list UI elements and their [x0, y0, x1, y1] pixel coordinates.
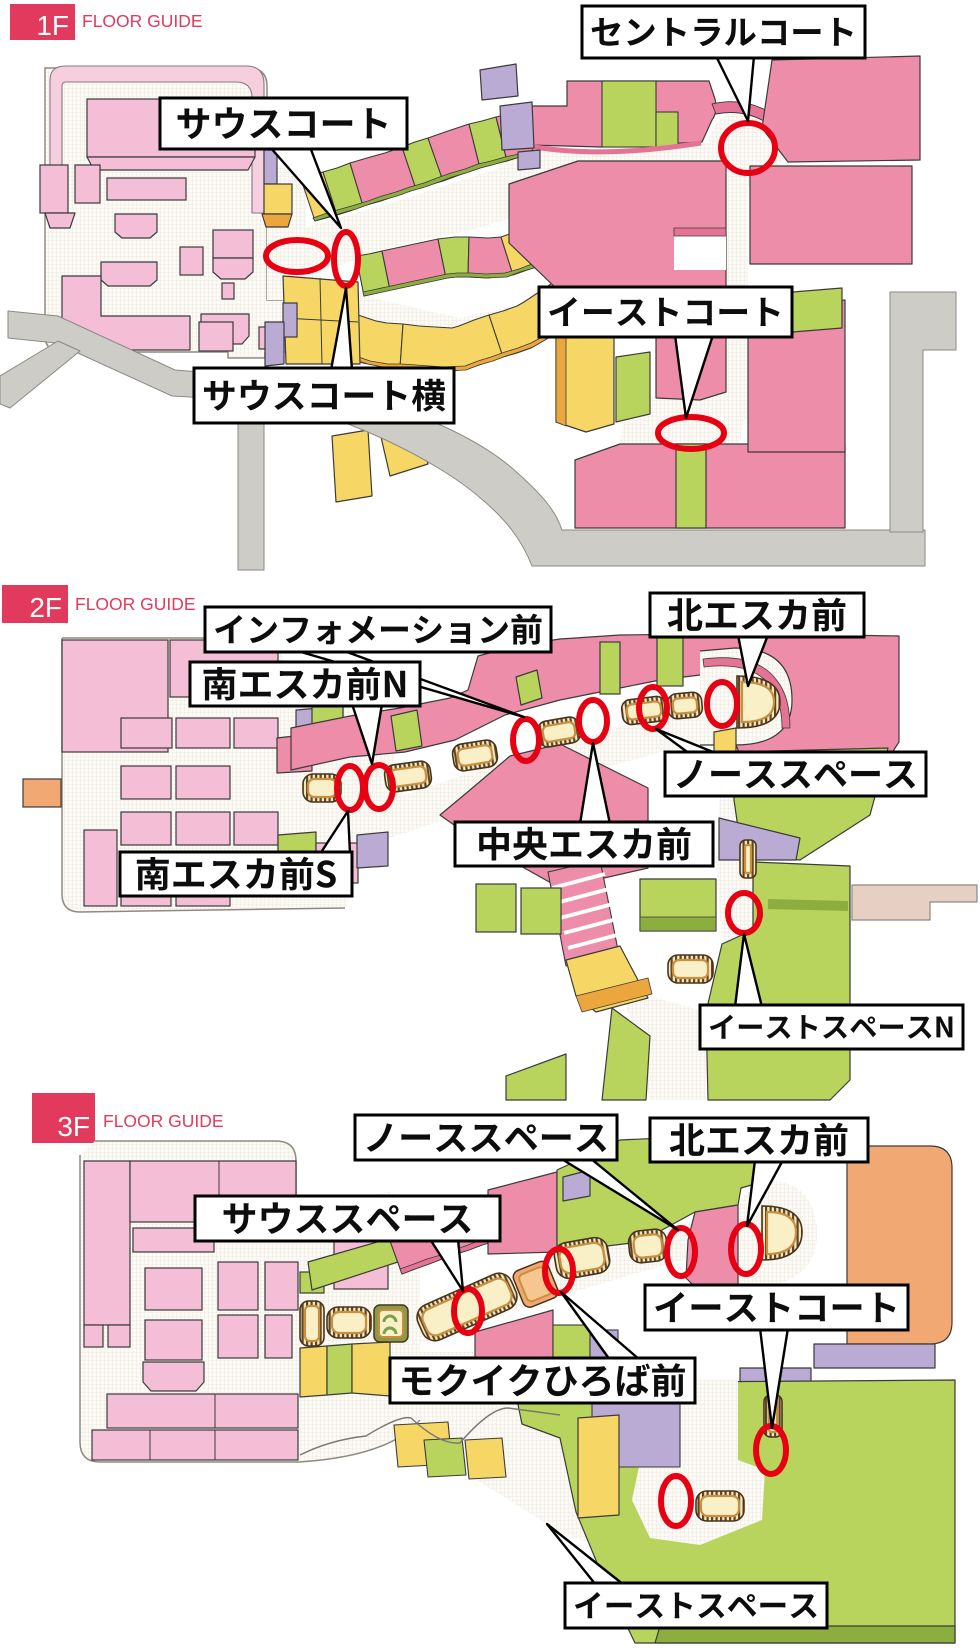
- svg-text:FLOOR GUIDE: FLOOR GUIDE: [103, 1111, 224, 1131]
- svg-text:2F: 2F: [29, 592, 62, 623]
- svg-text:FLOOR GUIDE: FLOOR GUIDE: [82, 11, 203, 31]
- svg-text:1F: 1F: [36, 10, 69, 41]
- svg-text:FLOOR GUIDE: FLOOR GUIDE: [75, 594, 196, 614]
- svg-text:3F: 3F: [57, 1111, 90, 1142]
